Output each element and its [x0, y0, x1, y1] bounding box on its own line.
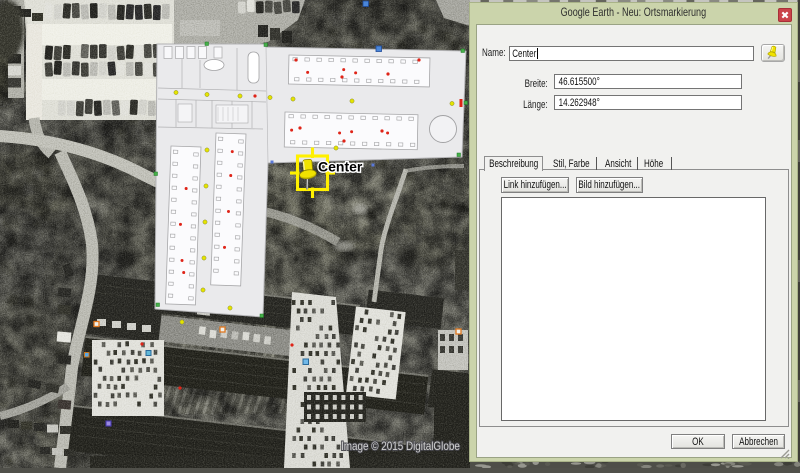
svg-text:Image © 2015 DigitalGlobe: Image © 2015 DigitalGlobe	[341, 440, 460, 453]
svg-text:Center: Center	[318, 159, 363, 175]
